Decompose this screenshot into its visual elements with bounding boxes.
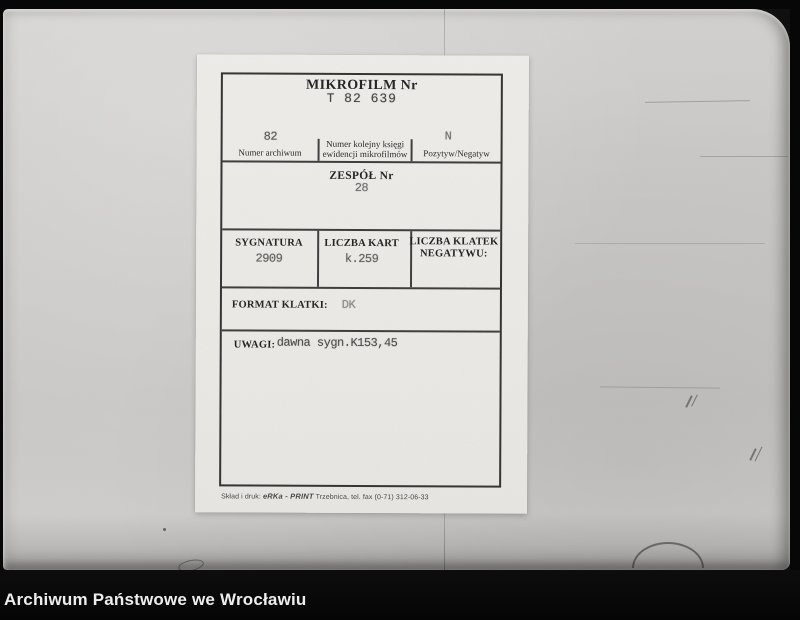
- registry-book-label-line1: Numer kolejny księgi: [320, 139, 411, 149]
- liczba-kart-label: LICZBA KART: [316, 238, 408, 250]
- archive-number-label: Numer archiwum: [223, 147, 318, 157]
- microfilm-number-value: T 82 639: [223, 90, 501, 106]
- archive-name: Archiwum Państwowe we Wrocławiu: [4, 590, 307, 610]
- scratch-mark: [700, 156, 788, 157]
- liczba-klatek-label-line2: NEGATYWU:: [407, 248, 500, 260]
- registry-row: MIKROFILM Nr T 82 639 82 N Numer archiwu…: [223, 74, 501, 163]
- printer-credit: Skład i druk: eRKa - PRINT Trzebnica, te…: [221, 491, 429, 501]
- scanned-page: MIKROFILM Nr T 82 639 82 N Numer archiwu…: [0, 0, 800, 620]
- liczba-kart-value: k.259: [316, 252, 408, 266]
- liczba-klatek-cell: LICZBA KLATEK NEGATYWU:: [407, 231, 500, 287]
- liczba-klatek-label-line1: LICZBA KLATEK: [408, 236, 501, 248]
- polarity-label: Pozytyw/Negatyw: [413, 148, 501, 158]
- format-klatki-value: DK: [342, 298, 355, 312]
- zespol-row: ZESPÓŁ Nr 28: [222, 162, 500, 231]
- zespol-value: 28: [222, 180, 500, 195]
- uwagi-value: dawna sygn.K153,45: [277, 336, 398, 351]
- printer-credit-prefix: Skład i druk:: [221, 493, 261, 500]
- format-klatki-label: FORMAT KLATKI:: [232, 299, 328, 310]
- detail-row: SYGNATURA 2909 LICZBA KART k.259 LICZBA …: [222, 230, 500, 289]
- uwagi-label: UWAGI:: [234, 339, 276, 350]
- sygnatura-label: SYGNATURA: [222, 237, 316, 249]
- liczba-kart-cell: LICZBA KART k.259: [316, 231, 408, 287]
- polarity-value: N: [445, 129, 452, 143]
- registry-book-label-line2: ewidencji mikrofilmów: [320, 149, 411, 159]
- speck-mark: [163, 528, 166, 531]
- registry-book-label: Numer kolejny księgi ewidencji mikrofilm…: [320, 139, 411, 159]
- microfilm-card: MIKROFILM Nr T 82 639 82 N Numer archiwu…: [195, 54, 529, 513]
- sygnatura-cell: SYGNATURA 2909: [222, 230, 316, 286]
- scratch-mark: [575, 243, 765, 244]
- archive-number-value: 82: [264, 130, 277, 144]
- printer-credit-suffix: Trzebnica, tel. fax (0-71) 312-06-33: [316, 494, 429, 501]
- uwagi-row: UWAGI: dawna sygn.K153,45: [221, 331, 500, 485]
- card-table: MIKROFILM Nr T 82 639 82 N Numer archiwu…: [219, 72, 503, 487]
- printer-credit-brand: eRKa - PRINT: [263, 492, 314, 501]
- format-klatki-line: FORMAT KLATKI: DK: [232, 294, 355, 313]
- liczba-klatek-label: LICZBA KLATEK NEGATYWU:: [407, 236, 500, 260]
- format-klatki-row: FORMAT KLATKI: DK: [222, 288, 500, 332]
- sygnatura-value: 2909: [222, 251, 316, 265]
- archive-caption-bar: Archiwum Państwowe we Wrocławiu: [0, 570, 800, 620]
